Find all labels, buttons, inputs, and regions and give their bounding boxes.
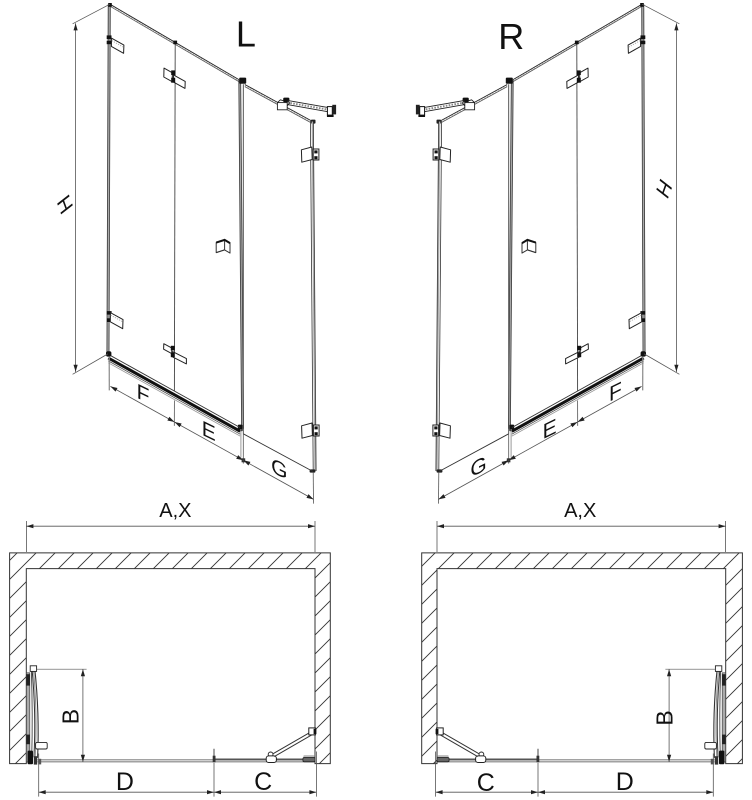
svg-text:G: G	[271, 453, 287, 485]
svg-text:H: H	[54, 190, 78, 218]
svg-text:R: R	[498, 16, 524, 57]
svg-text:B: B	[652, 710, 678, 725]
svg-text:D: D	[116, 768, 134, 796]
svg-text:H: H	[652, 174, 676, 202]
svg-text:A,X: A,X	[159, 500, 191, 522]
svg-text:E: E	[202, 416, 216, 446]
svg-text:D: D	[616, 768, 634, 796]
svg-text:B: B	[58, 709, 84, 724]
svg-text:G: G	[470, 451, 486, 483]
svg-text:L: L	[236, 14, 256, 55]
svg-text:F: F	[609, 377, 622, 407]
svg-text:C: C	[477, 769, 495, 797]
svg-text:F: F	[137, 379, 150, 409]
svg-text:A,X: A,X	[564, 500, 596, 522]
svg-text:C: C	[254, 768, 272, 796]
